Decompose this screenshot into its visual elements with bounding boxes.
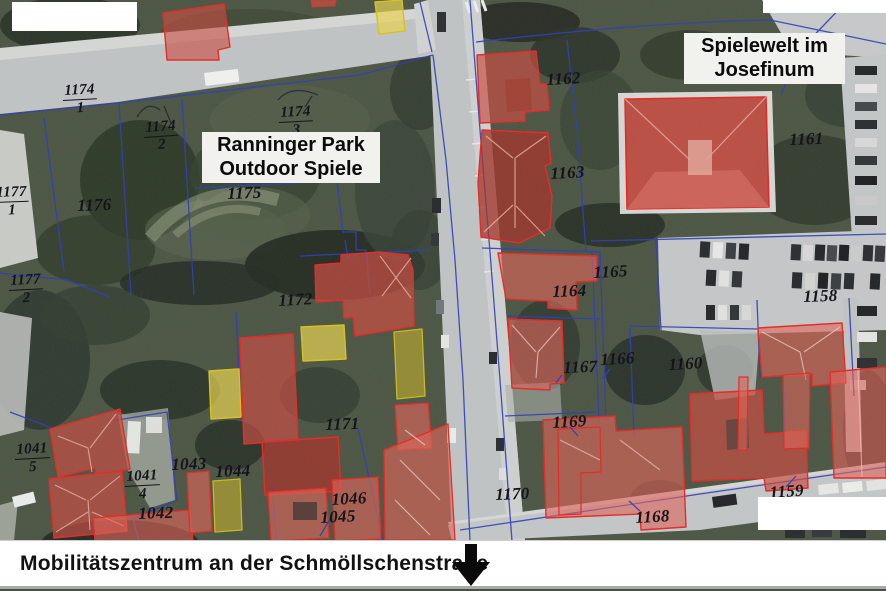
josefinum-callout-line1: Spielewelt im xyxy=(689,34,840,58)
parcel-label-1161: 1161 xyxy=(789,130,824,149)
parcel-label-1165: 1165 xyxy=(593,262,628,282)
parcel-label-1174-1: 11741 xyxy=(62,81,98,117)
redaction-box-top-right xyxy=(763,0,886,13)
parcel-label-1041-5: 10415 xyxy=(14,440,51,476)
park-callout-line2: Outdoor Spiele xyxy=(207,157,375,181)
parcel-label-1169: 1169 xyxy=(552,412,587,432)
parcel-label-1176: 1176 xyxy=(77,196,112,215)
parcel-labels-layer: 1174111742117431177111772104151041411761… xyxy=(0,0,886,591)
parcel-label-1168: 1168 xyxy=(635,507,670,527)
map-viewport: 1174111742117431177111772104151041411761… xyxy=(0,0,886,591)
parcel-label-1162: 1162 xyxy=(546,69,581,89)
caption-text: Mobilitätszentrum an der Schmöllschenstr… xyxy=(0,552,488,576)
parcel-label-1045: 1045 xyxy=(320,507,356,527)
parcel-label-1175: 1175 xyxy=(227,184,262,203)
parcel-label-1167: 1167 xyxy=(563,358,598,377)
parcel-label-1177-2: 11772 xyxy=(8,271,44,307)
bottom-caption-bar: Mobilitätszentrum an der Schmöllschenstr… xyxy=(0,540,886,589)
josefinum-callout: Spielewelt im Josefinum xyxy=(684,33,845,84)
parcel-label-1174-2: 11742 xyxy=(143,118,180,155)
josefinum-callout-line2: Josefinum xyxy=(689,58,840,82)
parcel-label-1044: 1044 xyxy=(215,462,251,481)
parcel-label-1163: 1163 xyxy=(550,163,585,183)
redaction-box-top-left xyxy=(12,2,137,31)
parcel-label-1172: 1172 xyxy=(278,290,313,310)
redaction-box-bottom-right xyxy=(758,497,886,530)
parcel-label-1166: 1166 xyxy=(600,349,635,369)
parcel-label-1177-1: 11771 xyxy=(0,184,30,220)
parcel-label-1170: 1170 xyxy=(495,485,530,504)
parcel-label-1164: 1164 xyxy=(552,282,587,301)
parcel-label-1171: 1171 xyxy=(325,415,360,434)
parcel-label-1042: 1042 xyxy=(138,504,174,523)
park-callout: Ranninger Park Outdoor Spiele xyxy=(202,132,380,183)
parcel-label-1160: 1160 xyxy=(668,354,703,374)
down-arrow-icon xyxy=(452,544,490,586)
parcel-label-1043: 1043 xyxy=(171,455,207,474)
parcel-label-1041-4: 10414 xyxy=(124,467,161,503)
parcel-label-1158: 1158 xyxy=(803,287,838,306)
park-callout-line1: Ranninger Park xyxy=(207,133,375,157)
